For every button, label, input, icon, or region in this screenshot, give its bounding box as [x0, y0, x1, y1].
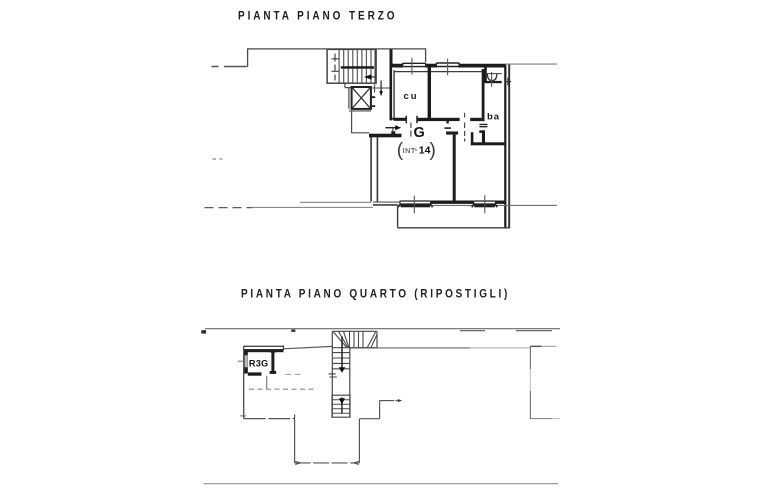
svg-text:G: G — [414, 125, 425, 141]
svg-text:R3G: R3G — [249, 358, 269, 368]
svg-text:cu: cu — [404, 91, 419, 102]
svg-text:ba: ba — [487, 112, 500, 123]
svg-text:14: 14 — [419, 145, 431, 157]
svg-text:-: - — [415, 145, 418, 154]
